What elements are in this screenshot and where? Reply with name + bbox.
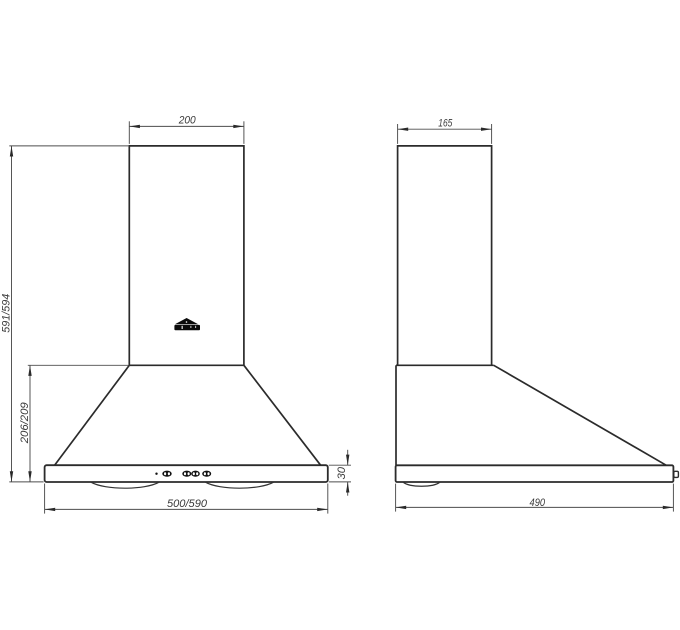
svg-text:591/594: 591/594 <box>1 294 13 333</box>
svg-text:500/590: 500/590 <box>167 498 208 510</box>
svg-text:206/209: 206/209 <box>19 402 31 444</box>
svg-text:30: 30 <box>336 466 348 479</box>
svg-text:200: 200 <box>178 115 197 127</box>
svg-text:165: 165 <box>438 118 453 130</box>
svg-text:490: 490 <box>530 497 546 509</box>
